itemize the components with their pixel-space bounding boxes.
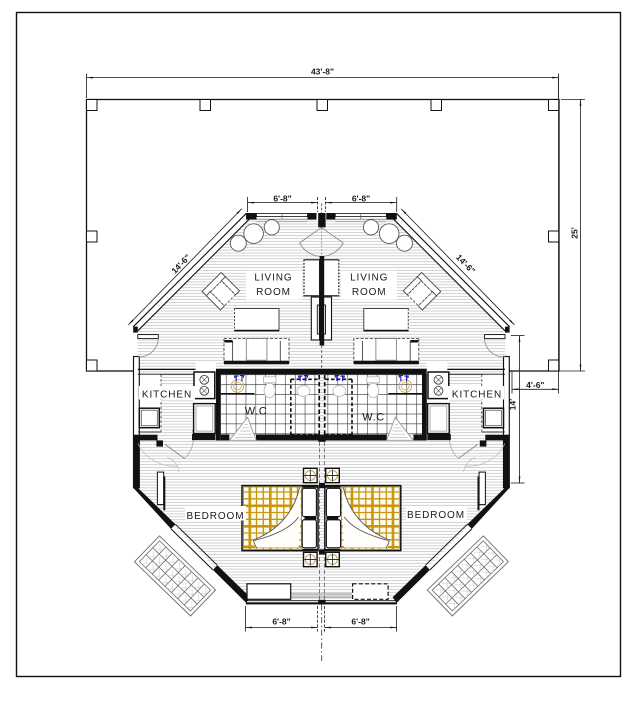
- svg-text:LIVING: LIVING: [350, 273, 388, 284]
- svg-text:BEDROOM: BEDROOM: [187, 511, 245, 522]
- svg-text:6'-8": 6'-8": [272, 617, 290, 627]
- svg-text:25': 25': [570, 227, 580, 238]
- svg-text:KITCHEN: KITCHEN: [142, 390, 192, 401]
- svg-text:LIVING: LIVING: [254, 273, 292, 284]
- svg-text:43'-8": 43'-8": [311, 67, 334, 77]
- svg-text:6'-8": 6'-8": [351, 617, 369, 627]
- svg-text:W.C: W.C: [245, 406, 268, 418]
- svg-text:14': 14': [508, 399, 518, 410]
- svg-text:BEDROOM: BEDROOM: [407, 510, 465, 521]
- svg-text:KITCHEN: KITCHEN: [452, 390, 502, 401]
- svg-text:4'-6": 4'-6": [526, 380, 544, 390]
- svg-text:6'-8": 6'-8": [273, 193, 291, 203]
- svg-text:W.C: W.C: [362, 412, 385, 424]
- svg-text:ROOM: ROOM: [352, 287, 387, 298]
- svg-text:ROOM: ROOM: [256, 287, 291, 298]
- svg-text:6'-8": 6'-8": [352, 193, 370, 203]
